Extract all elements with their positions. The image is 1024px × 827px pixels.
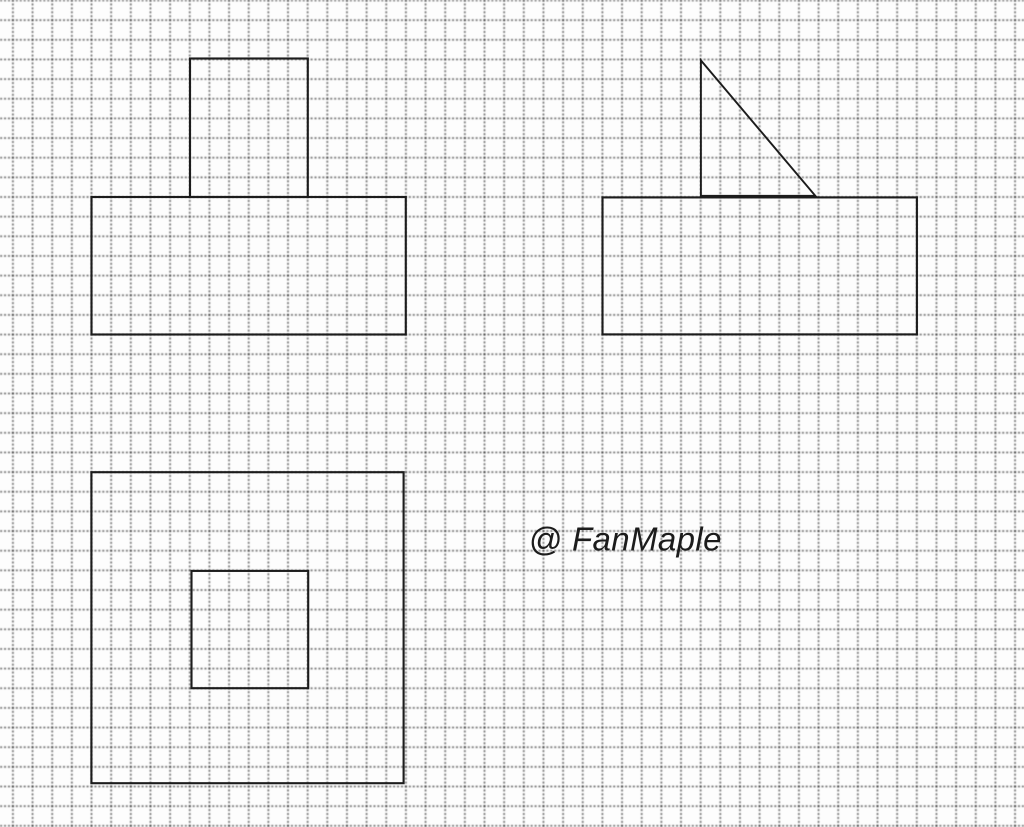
svg-text:@ FanMaple: @ FanMaple — [529, 521, 722, 558]
